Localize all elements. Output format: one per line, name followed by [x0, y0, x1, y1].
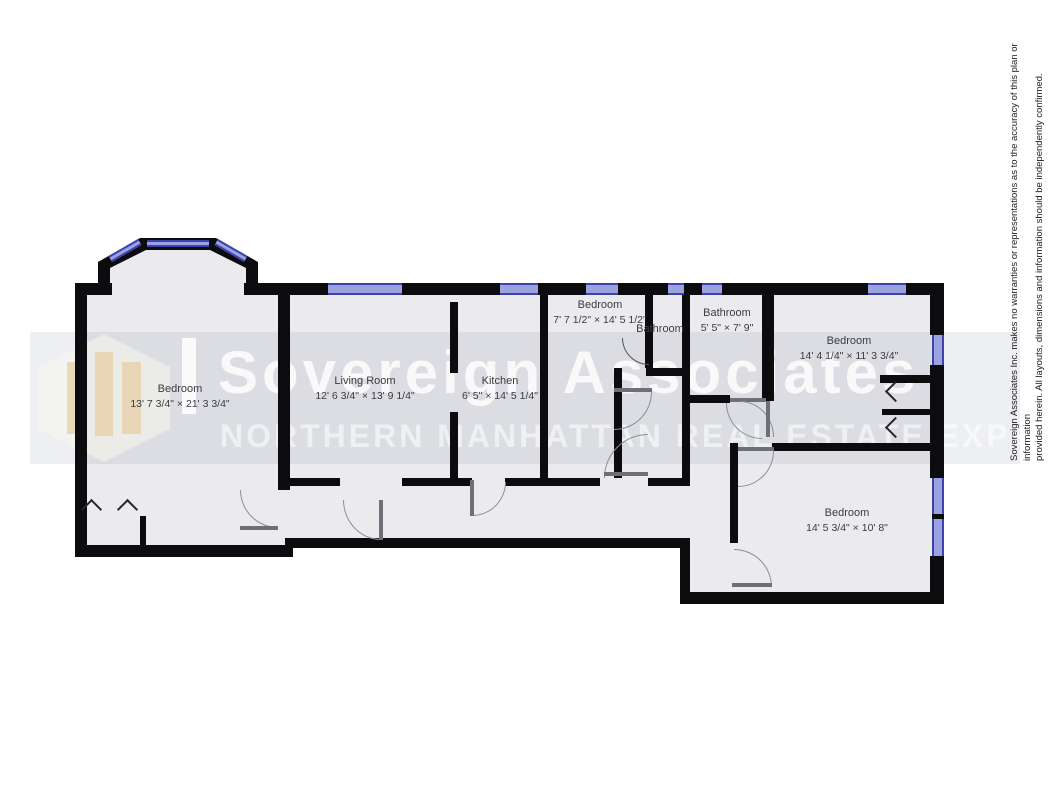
room-label-bedroom-2: Bedroom 7' 7 1/2" × 14' 5 1/2": [553, 298, 647, 328]
wall-segment: [450, 412, 458, 478]
window-bedroom-right: [868, 283, 906, 295]
room-dims: 7' 7 1/2" × 14' 5 1/2": [553, 313, 647, 328]
wall-segment: [930, 283, 944, 335]
room-name: Bathroom: [636, 322, 684, 337]
room-label-bedroom-3: Bedroom 14' 4 1/4" × 11' 3 3/4": [800, 334, 899, 364]
room-dims: 5' 5" × 7' 9": [701, 321, 754, 336]
room-label-living-room: Living Room 12' 6 3/4" × 13' 9 1/4": [315, 374, 414, 404]
wall-segment: [690, 395, 730, 403]
window-right-wall-upper: [932, 335, 944, 365]
logo-bar: [95, 352, 113, 436]
room-name: Bathroom: [701, 306, 754, 321]
closet-divider: [882, 409, 934, 415]
wall-segment: [730, 443, 738, 543]
wall-segment: [648, 478, 690, 486]
door-leaf: [240, 526, 278, 530]
disclaimer-line-2: provided herein. All layouts, dimensions…: [1034, 21, 1047, 461]
room-name: Bedroom: [130, 382, 229, 397]
window-bathroom-2: [702, 283, 722, 295]
room-dims: 14' 4 1/4" × 11' 3 3/4": [800, 349, 899, 364]
wall-segment: [402, 283, 500, 295]
window-bathroom-1: [668, 283, 684, 295]
room-label-kitchen: Kitchen 6' 5" × 14' 5 1/4": [462, 374, 538, 404]
room-label-bathroom: Bathroom 5' 5" × 7' 9": [701, 306, 754, 336]
closet-wall: [880, 375, 934, 383]
wall-segment: [618, 283, 668, 295]
wall-segment: [75, 283, 112, 295]
floor-plan: Sovereign Associates NORTHERN MANHATTAN …: [0, 0, 1060, 800]
closet-wall-stub: [140, 516, 146, 547]
window-living-room: [328, 283, 402, 295]
window-bedroom-middle: [586, 283, 618, 295]
room-name: Bedroom: [800, 334, 899, 349]
room-label-bedroom-4: Bedroom 14' 5 3/4" × 10' 8": [806, 506, 888, 536]
room-name: Living Room: [315, 374, 414, 389]
disclaimer-line-1: Sovereign Associates Inc. makes no warra…: [1009, 21, 1034, 461]
wall-segment: [722, 283, 868, 295]
room-name: Kitchen: [462, 374, 538, 389]
door-leaf: [379, 500, 383, 540]
floor-area-bottom-right: [685, 543, 932, 594]
door-leaf: [470, 480, 474, 516]
door-leaf: [766, 401, 770, 437]
room-dims: 12' 6 3/4" × 13' 9 1/4": [315, 389, 414, 404]
room-dims: 14' 5 3/4" × 10' 8": [806, 521, 888, 536]
wall-segment: [540, 295, 548, 478]
room-name: Bedroom: [806, 506, 888, 521]
wall-segment: [402, 478, 472, 486]
wall-segment: [772, 443, 934, 451]
window-mullion: [932, 514, 944, 519]
room-label-bedroom-1: Bedroom 13' 7 3/4" × 21' 3 3/4": [130, 382, 229, 412]
wall-segment: [285, 478, 340, 486]
wall-segment: [505, 478, 600, 486]
window-kitchen: [500, 283, 538, 295]
wall-segment: [285, 538, 687, 548]
room-label-bathroom-small: Bathroom: [636, 322, 684, 337]
wall-segment: [762, 283, 774, 401]
door-leaf: [604, 472, 648, 476]
wall-segment: [450, 302, 458, 373]
wall-segment: [538, 283, 586, 295]
wall-segment: [75, 545, 293, 557]
room-name: Bedroom: [553, 298, 647, 313]
room-dims: 6' 5" × 14' 5 1/4": [462, 389, 538, 404]
wall-segment: [278, 283, 290, 490]
door-leaf: [732, 583, 772, 587]
wall-segment: [680, 592, 944, 604]
wall-segment: [682, 283, 690, 478]
room-dims: 13' 7 3/4" × 21' 3 3/4": [130, 397, 229, 412]
bay-window-center: [147, 240, 209, 247]
disclaimer-text: Sovereign Associates Inc. makes no warra…: [1009, 21, 1035, 461]
wall-segment: [75, 283, 87, 557]
